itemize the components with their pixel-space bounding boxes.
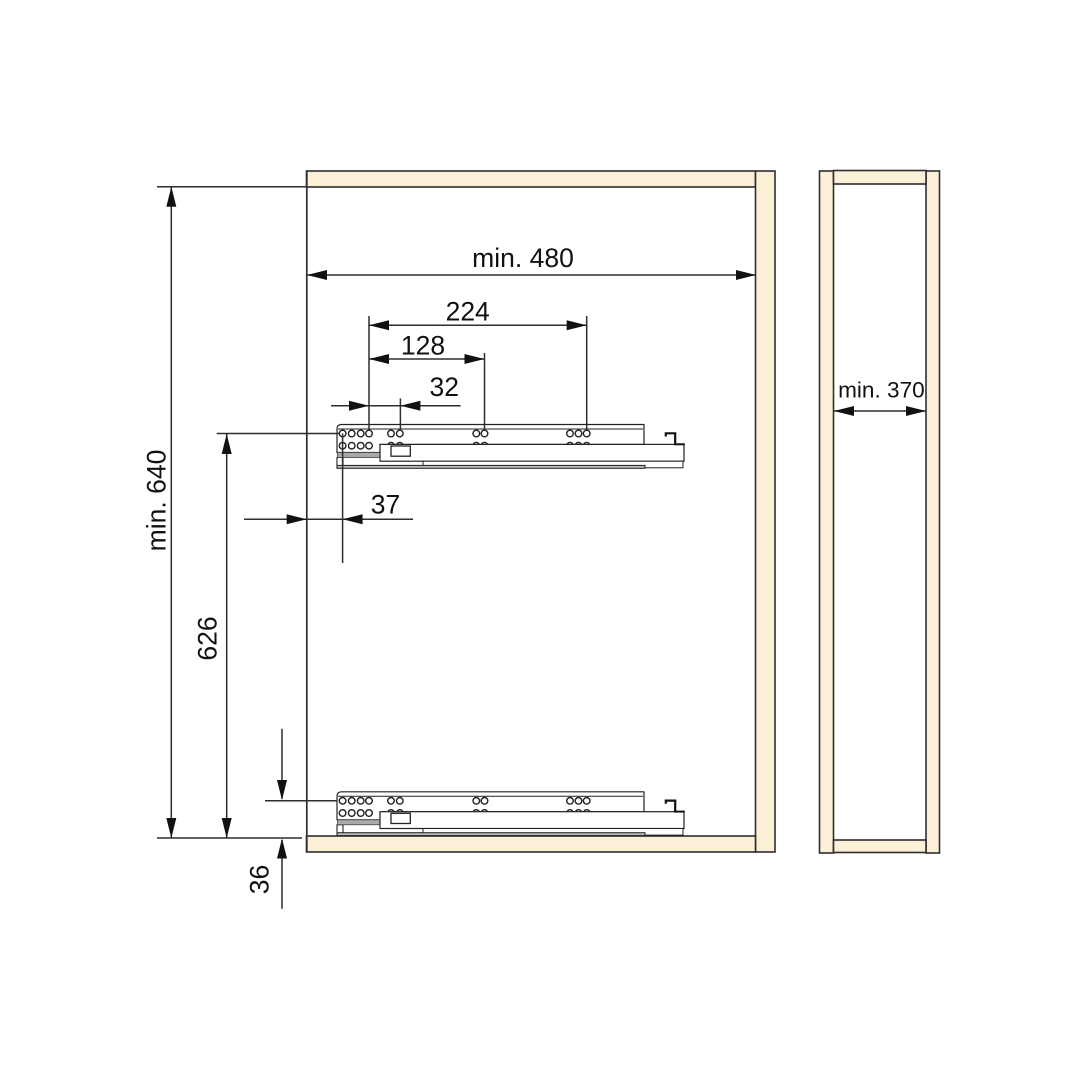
- svg-text:128: 128: [401, 331, 445, 361]
- svg-text:min. 480: min. 480: [472, 243, 574, 273]
- svg-text:37: 37: [371, 490, 400, 520]
- svg-text:36: 36: [245, 865, 275, 894]
- svg-text:min. 640: min. 640: [141, 450, 171, 552]
- svg-text:224: 224: [446, 297, 490, 327]
- svg-text:32: 32: [430, 372, 459, 402]
- svg-text:626: 626: [193, 616, 223, 660]
- svg-text:min. 370: min. 370: [838, 378, 925, 403]
